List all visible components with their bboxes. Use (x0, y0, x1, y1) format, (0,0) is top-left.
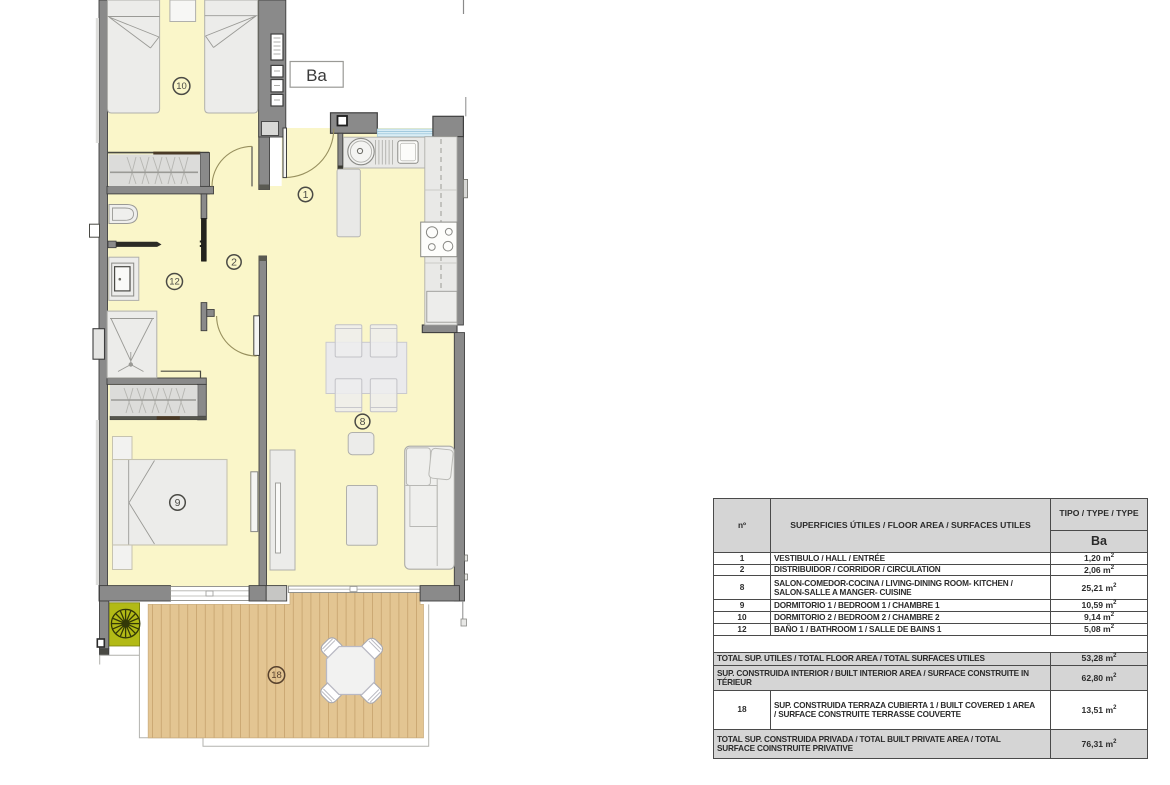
svg-text:10: 10 (176, 81, 187, 92)
svg-text:18: 18 (271, 670, 282, 681)
svg-text:8: 8 (360, 416, 366, 428)
svg-text:1: 1 (303, 189, 309, 201)
svg-text:2: 2 (231, 257, 237, 269)
svg-text:9: 9 (175, 497, 181, 509)
svg-text:12: 12 (169, 277, 180, 288)
svg-text:Ba: Ba (306, 66, 327, 85)
